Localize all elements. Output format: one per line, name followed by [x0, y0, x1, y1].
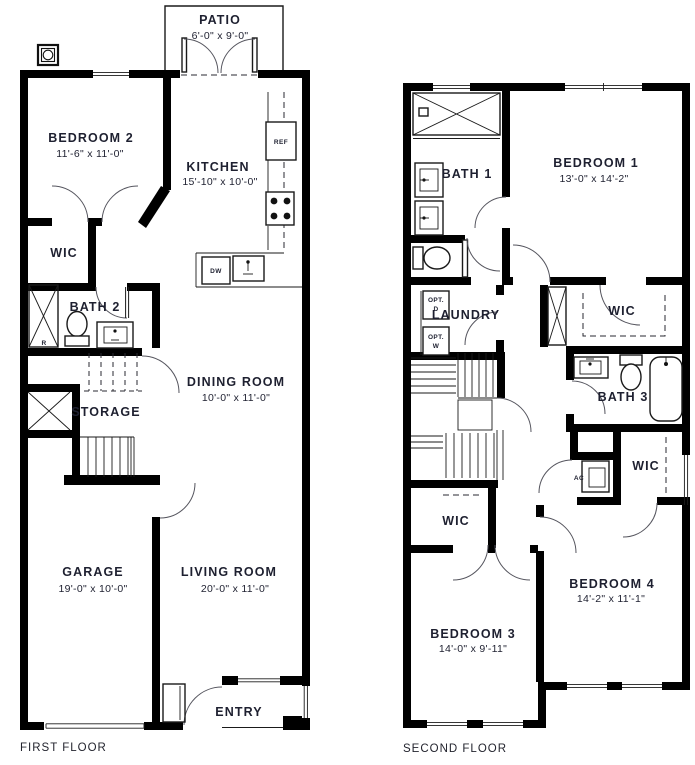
bedroom1-door-arc [513, 245, 550, 282]
opt-w-line1: OPT. [428, 334, 444, 341]
storage-label: STORAGE [71, 405, 140, 419]
shower-icon: R [29, 285, 58, 347]
bath2-label: BATH 2 [70, 300, 121, 314]
wic-bed1-label: WIC [608, 304, 636, 318]
laundry-label: LAUNDRY [432, 308, 500, 322]
bedroom4-label: BEDROOM 4 [569, 577, 655, 591]
dw-label: DW [210, 268, 222, 275]
window [483, 723, 523, 726]
refrigerator-icon: REF [266, 122, 296, 160]
ac-closet-icon [582, 461, 609, 492]
garage-dims: 19'-0" x 10'-0" [58, 583, 127, 595]
vanity-sink-icon [415, 163, 443, 197]
garage-door-arc [160, 483, 195, 518]
bedroom2-label: BEDROOM 2 [48, 131, 134, 145]
first-floor-plan: REF DW [20, 6, 310, 754]
wic-label: WIC [50, 246, 78, 260]
vanity-sink-icon [574, 357, 608, 378]
garage-door [46, 724, 144, 728]
patio-label: PATIO [199, 13, 241, 27]
bath1-label: BATH 1 [442, 167, 493, 181]
bedroom3-label: BEDROOM 3 [430, 627, 516, 641]
kitchen-sink-icon [233, 256, 264, 281]
stair-landing-door-arc [497, 398, 531, 432]
vanity-sink-icon [415, 201, 443, 235]
kitchen-label: KITCHEN [186, 160, 249, 174]
bath3-label: BATH 3 [598, 390, 649, 404]
stairs-lower-treads [80, 437, 134, 477]
bedroom2-door-arc [52, 186, 88, 222]
ac-closet-door-arc [539, 460, 572, 493]
toilet-icon [620, 355, 642, 390]
opt-w-line2: W [433, 343, 440, 350]
opt-d-line1: OPT. [428, 297, 444, 304]
toilet-icon [413, 247, 450, 269]
shower-drain-label: R [41, 340, 46, 347]
stove-icon [266, 192, 294, 225]
second-floor-caption: SECOND FLOOR [403, 743, 507, 755]
bedroom1-dims: 13'-0" x 14'-2" [559, 173, 628, 185]
patio-door-arc [184, 39, 218, 73]
floor-plan-drawing: REF DW [0, 0, 695, 765]
linen-closet-icon [548, 287, 566, 345]
window [565, 83, 642, 91]
bath3-fixtures [574, 355, 682, 421]
bedroom4-dims: 14'-2" x 11'-1" [577, 593, 645, 605]
first-floor-caption: FIRST FLOOR [20, 742, 107, 754]
window [567, 685, 607, 688]
bedroom3-door-arc [495, 545, 530, 580]
garage-label: GARAGE [62, 565, 123, 579]
detector-icon [38, 45, 58, 65]
dining-label: DINING ROOM [187, 375, 285, 389]
second-floor-plan: OPT. D OPT. W [403, 83, 690, 755]
patio-door-leaf [253, 38, 258, 72]
bath1-door-arc [475, 197, 506, 228]
kitchen-fixtures: REF DW [196, 92, 302, 287]
second-floor-stairs [411, 353, 503, 480]
dishwasher-icon: DW [202, 257, 230, 284]
patio-dims: 6'-0" x 9'-0" [192, 30, 249, 42]
toilet-icon [65, 312, 89, 347]
bedroom2-dims: 11'-6" x 11'-0" [56, 148, 124, 160]
stairs-dashed-treads [84, 353, 142, 391]
shower-icon [413, 93, 500, 139]
entry-closet [163, 684, 185, 722]
ac-label: AC [574, 475, 584, 482]
stair-hall-door-arc [142, 356, 179, 393]
window [622, 685, 662, 688]
bedroom3-dims: 14'-0" x 9'-11" [439, 643, 507, 655]
living-label: LIVING ROOM [181, 565, 277, 579]
second-floor-labels: BATH 1 BEDROOM 1 13'-0" x 14'-2" LAUNDRY… [403, 156, 660, 755]
kitchen-dims: 15'-10" x 10'-0" [182, 176, 257, 188]
wic-bed3-door-arc [453, 545, 488, 580]
living-dims: 20'-0" x 11'-0" [201, 583, 269, 595]
wic-bed4-door-arc [623, 503, 657, 537]
storage-under-stair-brace [28, 392, 70, 430]
bathtub-icon [650, 357, 682, 421]
window [433, 86, 470, 89]
toilet-room-door-arc [467, 238, 500, 271]
hall-door-arc [102, 186, 138, 222]
window [93, 73, 129, 76]
wic-bed4-label: WIC [632, 459, 660, 473]
toilet-room-wall [463, 240, 468, 277]
floor-plan-page: REF DW [0, 0, 695, 765]
laundry-fixtures: OPT. D OPT. W [421, 291, 449, 355]
wic-bed3-label: WIC [442, 514, 470, 528]
bedroom4-door-arc [540, 517, 576, 553]
window [427, 723, 467, 726]
patio-door-arc [221, 39, 255, 73]
entry-window [238, 679, 280, 682]
optional-washer-box: OPT. W [423, 327, 449, 355]
ref-label: REF [274, 139, 288, 146]
entry-label: ENTRY [215, 705, 262, 719]
dining-dims: 10'-0" x 11'-0" [202, 392, 270, 404]
vanity-sink-icon [97, 322, 133, 348]
window [304, 686, 307, 718]
bedroom1-label: BEDROOM 1 [553, 156, 639, 170]
patio-door-leaf [182, 38, 187, 72]
